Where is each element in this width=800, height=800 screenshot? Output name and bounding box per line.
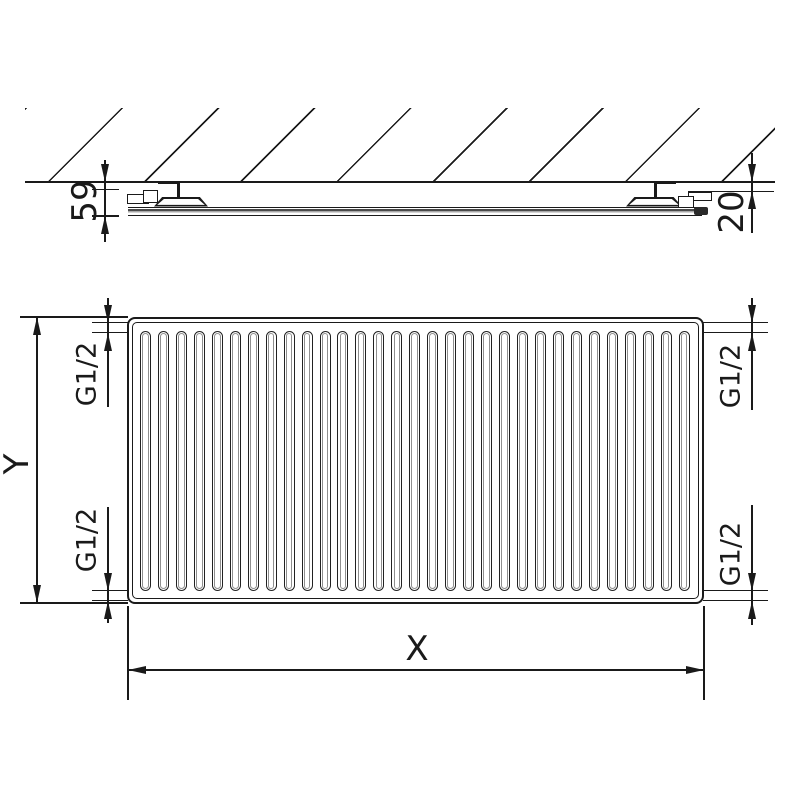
fin — [661, 331, 672, 591]
arrowhead-down — [33, 585, 41, 603]
fin-array — [140, 331, 690, 591]
fin — [355, 331, 366, 591]
dimension-label-height: Y — [0, 454, 34, 475]
fin — [607, 331, 618, 591]
arrowhead-down — [748, 573, 756, 591]
pipe-stub-top-right — [703, 322, 768, 333]
pipe-stub-bottom-left — [92, 590, 128, 601]
fin — [373, 331, 384, 591]
connection-label: G1/2 — [74, 342, 101, 406]
fin — [535, 331, 546, 591]
fin — [158, 331, 169, 591]
fin — [212, 331, 223, 591]
wall-hatch-pattern — [25, 108, 775, 182]
fin — [589, 331, 600, 591]
connection-label: G1/2 — [74, 508, 101, 572]
fin — [337, 331, 348, 591]
extension-line-left — [127, 606, 129, 700]
fin — [320, 331, 331, 591]
pipe-stub-bottom-right — [703, 590, 768, 601]
arrowhead-down — [104, 305, 112, 323]
arrowhead-up — [33, 317, 41, 335]
pipe-stub-top-left — [92, 322, 128, 333]
fin — [463, 331, 474, 591]
fin — [517, 331, 528, 591]
extension-line-right — [703, 606, 705, 700]
anchor-head — [143, 190, 158, 203]
radiator-technical-drawing: 59 20 G1/2 G — [0, 0, 800, 800]
fin — [194, 331, 205, 591]
arrowhead-left — [128, 666, 146, 674]
fin — [445, 331, 456, 591]
bracket-saddle — [626, 197, 682, 207]
bracket-saddle — [154, 197, 208, 207]
fin — [571, 331, 582, 591]
bracket-hook — [655, 182, 676, 184]
fin — [427, 331, 438, 591]
fin — [230, 331, 241, 591]
panel-end-cap — [694, 207, 708, 215]
fin — [302, 331, 313, 591]
fin — [643, 331, 654, 591]
dimension-label-20: 20 — [715, 190, 749, 233]
fin — [481, 331, 492, 591]
fin — [140, 331, 151, 591]
fin — [679, 331, 690, 591]
dimension-label-width: X — [405, 632, 428, 666]
fin — [176, 331, 187, 591]
arrowhead-down — [748, 164, 756, 182]
fin — [553, 331, 564, 591]
dimension-line — [128, 669, 704, 671]
fin — [266, 331, 277, 591]
arrowhead-down — [748, 305, 756, 323]
anchor-head — [678, 196, 694, 208]
fin — [499, 331, 510, 591]
fin — [391, 331, 402, 591]
radiator-panel-edge — [128, 207, 702, 216]
fin — [284, 331, 295, 591]
connection-label: G1/2 — [718, 522, 745, 586]
fin — [625, 331, 636, 591]
arrowhead-up — [748, 333, 756, 351]
arrowhead-up — [104, 333, 112, 351]
arrowhead-up — [104, 601, 112, 619]
fin — [248, 331, 259, 591]
arrowhead-right — [686, 666, 704, 674]
fin — [409, 331, 420, 591]
connection-label: G1/2 — [718, 344, 745, 408]
arrowhead-down — [104, 573, 112, 591]
dimension-label-59: 59 — [68, 179, 102, 222]
arrowhead-up — [748, 601, 756, 619]
